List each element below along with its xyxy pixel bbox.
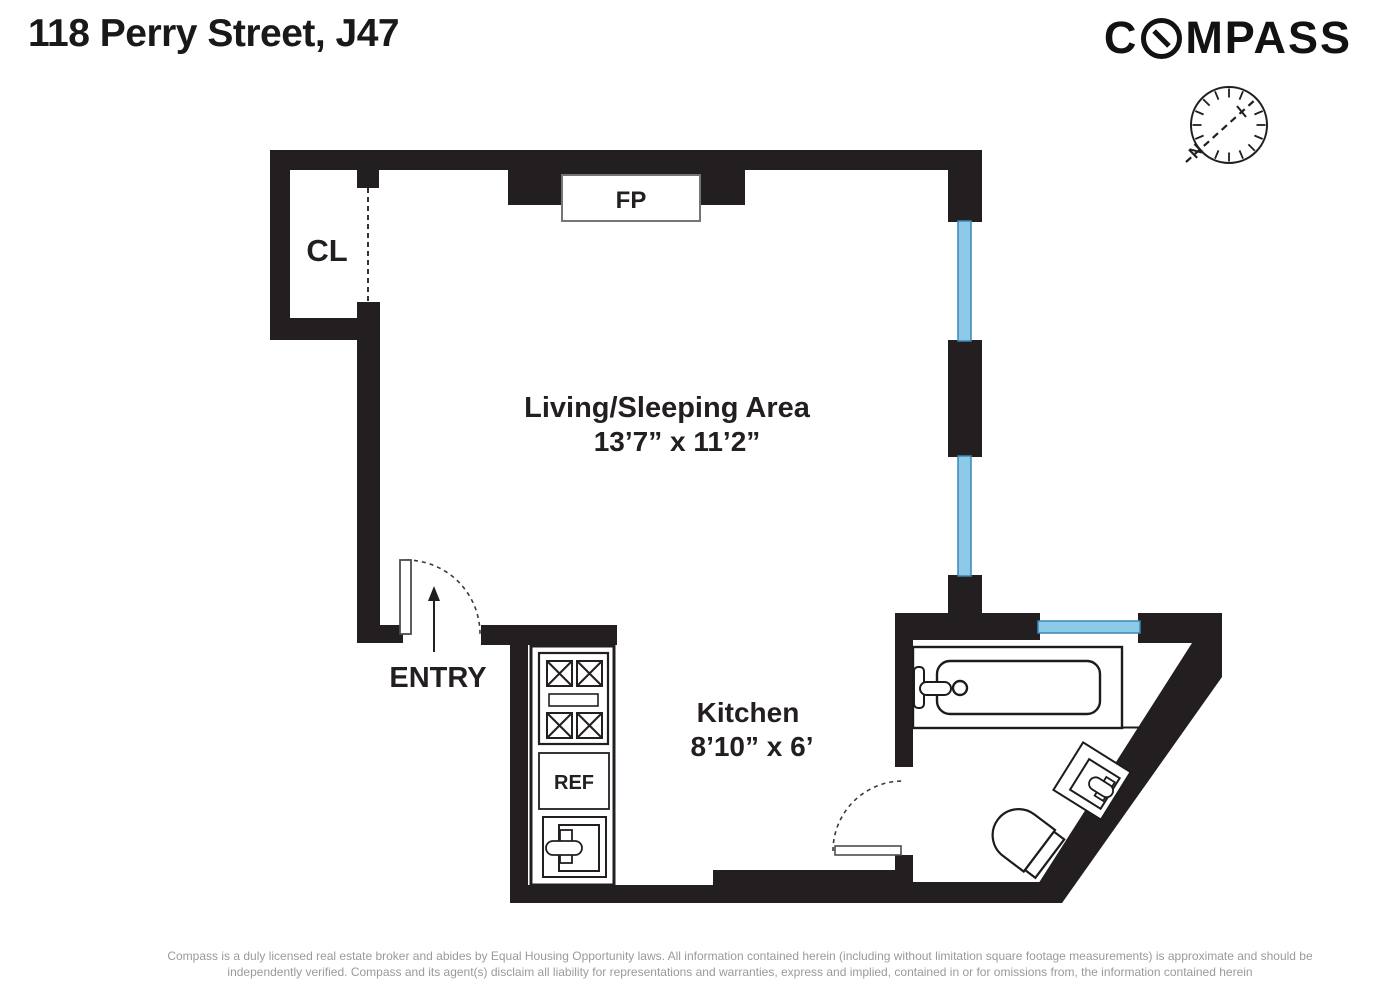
- floorplan-page: 118 Perry Street, J47 C MPASS: [0, 0, 1375, 1000]
- kitchen-appliances: [531, 646, 614, 885]
- stove-control-panel: [549, 694, 598, 706]
- compass-needle-cross: [1237, 106, 1246, 117]
- wall-closet-bottom: [270, 318, 361, 340]
- wall-closet-door-stub: [357, 170, 379, 188]
- bathroom-door-leaf: [835, 846, 901, 855]
- bathroom-fixtures: [913, 647, 1142, 879]
- entry-door-swing-arc: [406, 560, 480, 634]
- wall-right-mid-block: [948, 340, 982, 457]
- compass-rose: N: [1185, 87, 1267, 163]
- wall-bath-left: [895, 613, 913, 767]
- wall-bath-top-left: [895, 613, 1040, 640]
- tub-drain: [953, 681, 967, 695]
- fireplace-label: FP: [616, 187, 647, 214]
- entry-door-leaf: [400, 560, 411, 634]
- living-area-dims: 13’7” x 11’2”: [594, 426, 761, 457]
- wall-bottom-mid: [713, 870, 913, 903]
- closet-label: CL: [306, 233, 347, 268]
- legal-disclaimer: Compass is a duly licensed real estate b…: [150, 948, 1330, 980]
- wall-bottom-left: [510, 885, 714, 903]
- entry-arrow-head: [428, 586, 440, 601]
- tub-faucet-handle: [920, 682, 951, 695]
- wall-entry-left-stub: [357, 625, 403, 643]
- refrigerator-label: REF: [554, 772, 594, 794]
- living-area-label: Living/Sleeping Area: [524, 392, 811, 424]
- kitchen-label: Kitchen: [697, 697, 800, 728]
- floorplan-drawing: N CL FP Living/Sleeping Area 13’7” x 11’…: [0, 0, 1375, 1000]
- disclaimer-line-2: independently verified. Compass and its …: [150, 964, 1330, 980]
- windows-group: [958, 221, 1140, 633]
- wall-left: [357, 302, 380, 643]
- disclaimer-line-1: Compass is a duly licensed real estate b…: [150, 948, 1330, 964]
- kitchen-dims: 8’10” x 6’: [691, 731, 814, 762]
- window-right-upper: [958, 221, 971, 341]
- wall-entry-right: [481, 625, 617, 645]
- wall-bath-top-right: [1138, 613, 1222, 643]
- entry-label: ENTRY: [389, 662, 486, 694]
- wall-kitchen-left: [510, 645, 528, 903]
- kitchen-faucet-handle: [546, 841, 582, 855]
- wall-closet-left: [270, 150, 290, 340]
- window-bathroom: [1038, 621, 1140, 633]
- window-right-lower: [958, 456, 971, 576]
- bathroom-door-swing-arc: [833, 781, 903, 851]
- wall-right-top-block: [948, 150, 982, 222]
